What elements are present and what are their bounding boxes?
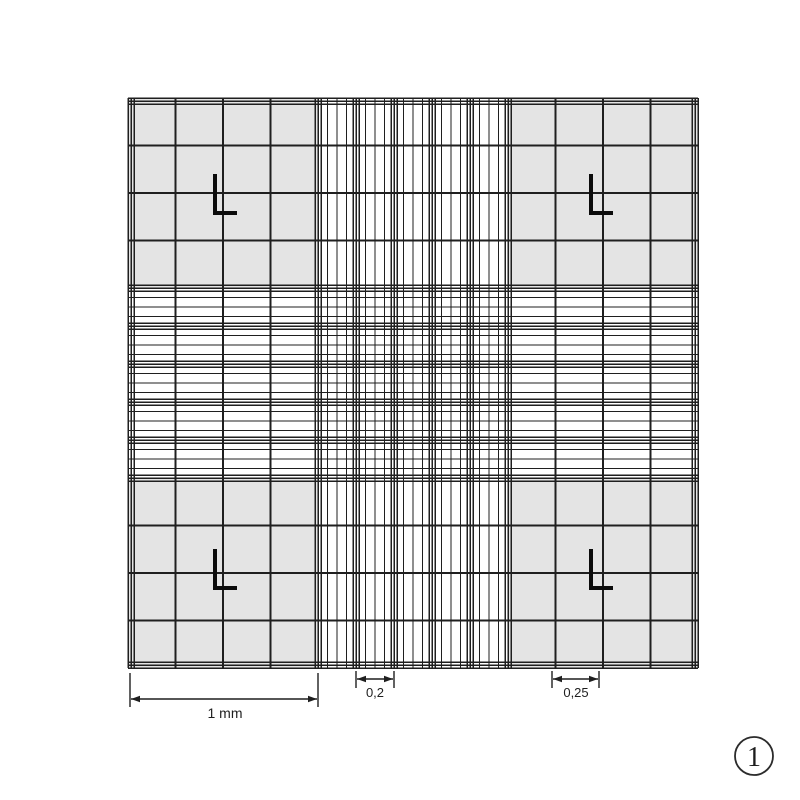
hemocytometer-diagram: 1 mm0,20,251: [0, 0, 800, 800]
dimension-label: 1 mm: [208, 705, 243, 721]
figure-number-text: 1: [747, 742, 761, 773]
dimension-label: 0,2: [366, 685, 384, 700]
figure-canvas: 1 mm0,20,251: [0, 0, 800, 800]
dimension-label: 0,25: [563, 685, 588, 700]
